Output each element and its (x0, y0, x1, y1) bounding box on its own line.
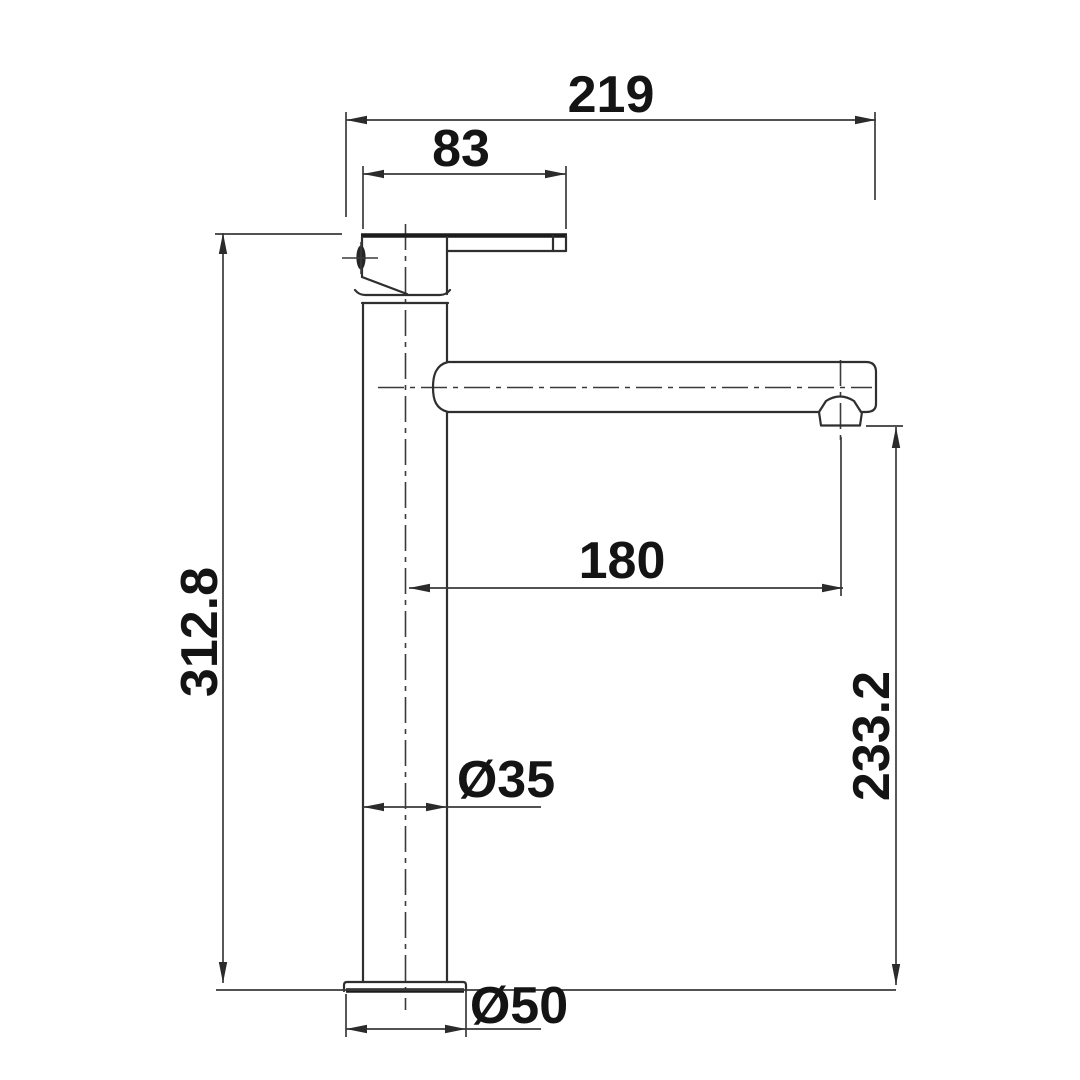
handle-front-diagonal (362, 277, 407, 294)
arrowhead-180-right (822, 584, 843, 592)
arrowhead-83-right (545, 170, 566, 178)
arrowhead-83-left (363, 170, 384, 178)
faucet-outline (342, 236, 876, 992)
arrowhead-180-left (409, 584, 430, 592)
dim-overall-width: 219 (346, 66, 876, 217)
centerlines (378, 224, 872, 1010)
dim-label-handle-width: 83 (432, 120, 490, 178)
dim-label-overall-height: 312.8 (171, 567, 229, 697)
dim-label-spout-outlet-height: 233.2 (843, 671, 901, 801)
dim-overall-height: 312.8 (171, 233, 896, 990)
dim-label-spout-reach: 180 (579, 532, 666, 590)
dim-label-overall-width: 219 (568, 66, 655, 124)
arrowhead-2332-top (892, 427, 900, 448)
arrowhead-219-right (855, 116, 876, 124)
arrowhead-2332-bottom (892, 964, 900, 985)
arrowhead-d35-left (363, 803, 384, 811)
arrowhead-d50-left (346, 1025, 367, 1033)
arrowhead-d35-right (426, 803, 447, 811)
dim-label-base-diameter: Ø50 (470, 977, 568, 1035)
dim-body-diameter: Ø35 (363, 751, 555, 811)
dim-spout-outlet-height: 233.2 (843, 426, 903, 985)
arrowhead-219-left (346, 116, 367, 124)
arrowhead-d50-right (445, 1025, 466, 1033)
drawing-canvas: 219 83 312.8 180 233.2 Ø3 (0, 0, 1080, 1080)
dim-base-diameter: Ø50 (346, 977, 568, 1037)
faucet-dimension-drawing: 219 83 312.8 180 233.2 Ø3 (0, 0, 1080, 1080)
arrowhead-3128-top (219, 233, 227, 254)
dim-handle-width: 83 (363, 120, 566, 229)
arrowhead-3128-bottom (219, 962, 227, 983)
dim-label-body-diameter: Ø35 (457, 751, 555, 809)
dim-spout-reach: 180 (409, 437, 843, 596)
